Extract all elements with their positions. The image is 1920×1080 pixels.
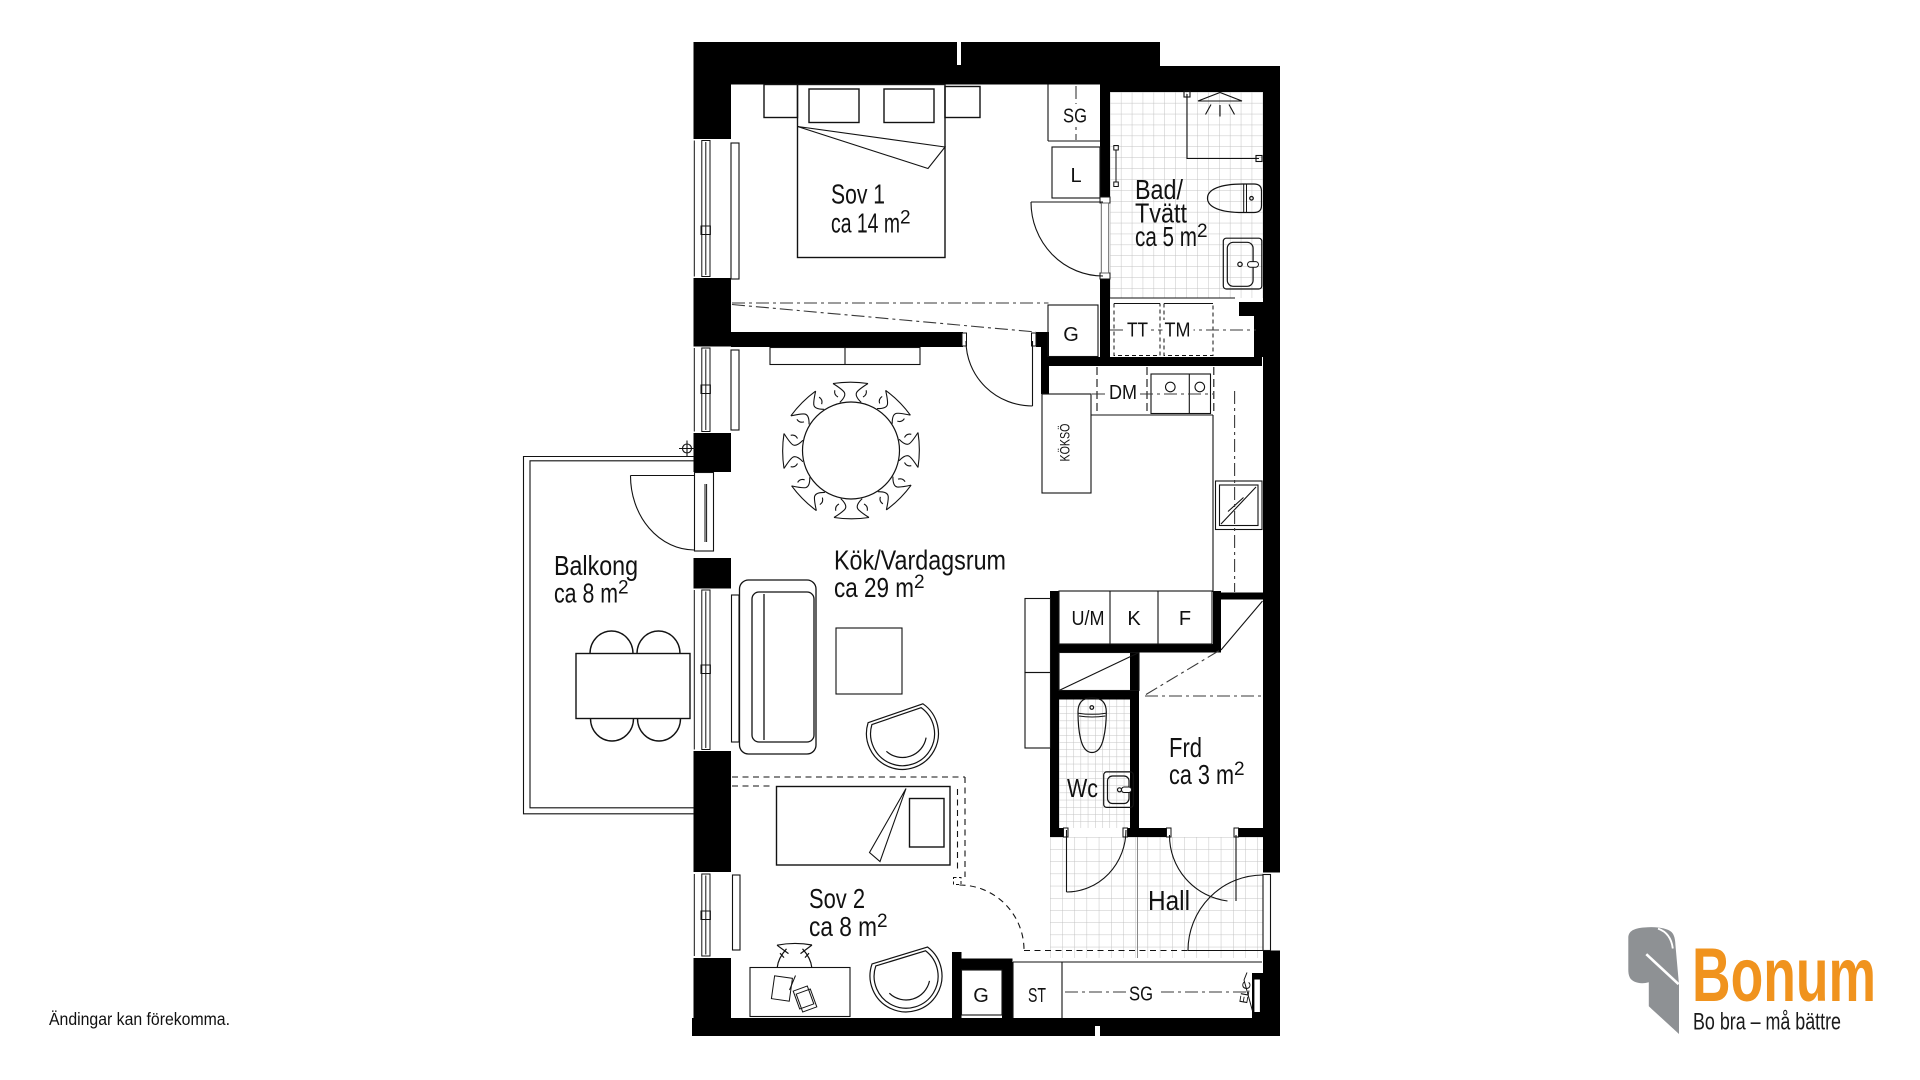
svg-text:Ändingar kan förekomma.: Ändingar kan förekomma. bbox=[49, 1009, 230, 1029]
svg-text:DM: DM bbox=[1109, 382, 1137, 404]
svg-text:ca 8 m2: ca 8 m2 bbox=[554, 578, 629, 609]
svg-text:TM: TM bbox=[1165, 320, 1191, 342]
svg-text:Balkong: Balkong bbox=[554, 550, 638, 581]
svg-text:Kök/Vardagsrum: Kök/Vardagsrum bbox=[834, 545, 1006, 576]
svg-text:Bonum: Bonum bbox=[1692, 933, 1876, 1018]
svg-text:K: K bbox=[1127, 608, 1141, 630]
svg-text:KÖKSÖ: KÖKSÖ bbox=[1056, 423, 1073, 461]
svg-text:U/M: U/M bbox=[1072, 608, 1105, 630]
svg-text:ca 5 m2: ca 5 m2 bbox=[1135, 221, 1208, 252]
svg-text:Hall: Hall bbox=[1148, 885, 1190, 916]
svg-text:Wc: Wc bbox=[1067, 773, 1098, 803]
svg-text:Sov 2: Sov 2 bbox=[809, 883, 865, 914]
svg-text:Sov 1: Sov 1 bbox=[831, 179, 885, 210]
svg-text:ca 29 m2: ca 29 m2 bbox=[834, 572, 925, 603]
svg-text:ST: ST bbox=[1028, 985, 1046, 1007]
svg-text:SG: SG bbox=[1063, 106, 1087, 128]
svg-text:TT: TT bbox=[1127, 320, 1148, 342]
svg-text:G: G bbox=[973, 985, 989, 1007]
svg-text:ca 8 m2: ca 8 m2 bbox=[809, 911, 888, 942]
svg-text:F: F bbox=[1179, 608, 1191, 630]
svg-text:Bo bra – må bättre: Bo bra – må bättre bbox=[1693, 1009, 1841, 1036]
svg-text:L: L bbox=[1070, 165, 1081, 187]
svg-text:ca 14 m2: ca 14 m2 bbox=[831, 208, 911, 239]
svg-text:G: G bbox=[1063, 324, 1079, 346]
svg-text:SG: SG bbox=[1129, 984, 1153, 1006]
svg-text:ca 3 m2: ca 3 m2 bbox=[1169, 759, 1245, 790]
